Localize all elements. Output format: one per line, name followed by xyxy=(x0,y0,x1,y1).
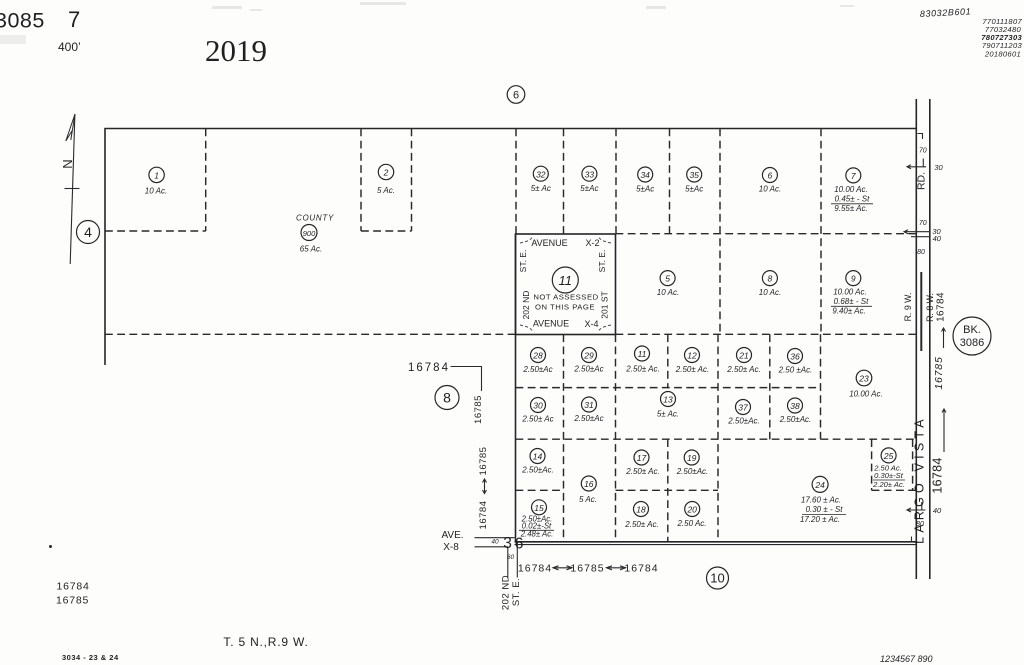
svg-text:65 Ac.: 65 Ac. xyxy=(300,245,322,254)
svg-text:16785: 16785 xyxy=(56,595,89,607)
svg-text:60: 60 xyxy=(507,554,515,561)
svg-text:15: 15 xyxy=(534,503,544,513)
svg-text:16784: 16784 xyxy=(936,292,947,322)
svg-text:10: 10 xyxy=(710,571,724,586)
svg-text:ST. E.: ST. E. xyxy=(511,578,522,606)
svg-text:2.50 Ac.: 2.50 Ac. xyxy=(676,519,706,528)
svg-text:8: 8 xyxy=(443,390,451,406)
svg-text:2.50±Ac.: 2.50±Ac. xyxy=(676,467,709,476)
svg-text:3034 - 23 & 24: 3034 - 23 & 24 xyxy=(62,653,119,662)
svg-text:25: 25 xyxy=(883,451,894,461)
svg-text:16784: 16784 xyxy=(478,501,489,530)
svg-text:400’: 400’ xyxy=(58,40,81,54)
svg-text:AVENUE: AVENUE xyxy=(533,319,569,329)
svg-text:70: 70 xyxy=(919,220,927,227)
svg-text:2.20± Ac.: 2.20± Ac. xyxy=(872,480,905,489)
svg-text:5±Ac: 5±Ac xyxy=(580,184,598,193)
svg-text:2.50± Ac.: 2.50± Ac. xyxy=(625,467,659,476)
svg-text:24: 24 xyxy=(814,480,825,490)
svg-text:10.00 Ac.: 10.00 Ac. xyxy=(849,390,883,399)
svg-text:10 Ac.: 10 Ac. xyxy=(759,288,781,297)
svg-text:11: 11 xyxy=(638,349,647,359)
svg-text:17.60 ± Ac.: 17.60 ± Ac. xyxy=(801,496,841,505)
svg-text:35: 35 xyxy=(689,170,699,180)
svg-text:2.50±Ac.: 2.50±Ac. xyxy=(521,465,554,474)
svg-text:16: 16 xyxy=(584,479,594,489)
svg-text:2.50± Ac: 2.50± Ac xyxy=(521,415,553,424)
svg-text:202 ND: 202 ND xyxy=(501,575,512,610)
svg-text:13: 13 xyxy=(663,395,673,405)
svg-text:2.50± Ac.: 2.50± Ac. xyxy=(624,520,658,529)
svg-text:2.50±Ac.: 2.50±Ac. xyxy=(779,415,812,424)
svg-text:16784: 16784 xyxy=(518,563,552,575)
svg-text:R. 8 W.: R. 8 W. xyxy=(925,293,935,322)
svg-text:RD.: RD. xyxy=(916,172,928,190)
svg-text:0.68± - St: 0.68± - St xyxy=(834,297,869,306)
svg-text:34: 34 xyxy=(640,170,650,180)
svg-text:70: 70 xyxy=(919,148,927,155)
svg-text:7: 7 xyxy=(851,171,856,181)
svg-text:14: 14 xyxy=(533,452,543,462)
svg-text:29: 29 xyxy=(583,351,594,361)
svg-text:2.50± Ac.: 2.50± Ac. xyxy=(675,365,709,374)
svg-text:3: 3 xyxy=(503,535,512,552)
svg-text:6: 6 xyxy=(768,171,773,181)
svg-text:R. 9 W.: R. 9 W. xyxy=(903,293,913,322)
svg-text:1234567 890: 1234567 890 xyxy=(880,654,933,664)
svg-text:30: 30 xyxy=(533,401,543,411)
svg-text:9: 9 xyxy=(851,274,856,284)
svg-text:0.30 ± - St: 0.30 ± - St xyxy=(806,505,844,514)
svg-text:16784: 16784 xyxy=(57,581,90,593)
svg-text:10.00 Ac.: 10.00 Ac. xyxy=(834,185,868,194)
svg-text:3086: 3086 xyxy=(960,337,984,349)
svg-text:900: 900 xyxy=(303,229,316,238)
svg-text:2.50± Ac.: 2.50± Ac. xyxy=(625,364,659,373)
svg-text:16785: 16785 xyxy=(570,563,604,575)
svg-text:N: N xyxy=(60,159,75,168)
svg-text:5± Ac: 5± Ac xyxy=(531,184,551,193)
svg-text:5: 5 xyxy=(665,274,670,284)
svg-text:T. 5 N.,R.9 W.: T. 5 N.,R.9 W. xyxy=(223,635,308,649)
svg-text:40: 40 xyxy=(933,234,942,243)
svg-text:2.50 ±Ac.: 2.50 ±Ac. xyxy=(778,365,813,374)
svg-text:X-2: X-2 xyxy=(585,238,599,248)
svg-text:5±Ac: 5±Ac xyxy=(685,184,703,193)
svg-text:31: 31 xyxy=(584,400,594,410)
svg-text:2.50±Ac: 2.50±Ac xyxy=(573,414,603,423)
svg-text:36: 36 xyxy=(790,352,800,362)
svg-text:21: 21 xyxy=(738,351,749,361)
svg-text:5± Ac.: 5± Ac. xyxy=(657,410,679,419)
svg-text:COUNTY: COUNTY xyxy=(296,214,334,223)
svg-text:5±Ac: 5±Ac xyxy=(636,184,654,193)
svg-text:17: 17 xyxy=(637,453,647,463)
svg-text:37: 37 xyxy=(738,403,748,413)
svg-text:80: 80 xyxy=(916,521,924,528)
svg-text:23: 23 xyxy=(858,374,869,384)
svg-text:19: 19 xyxy=(687,453,697,463)
svg-text:5 Ac.: 5 Ac. xyxy=(377,186,395,195)
svg-text:11: 11 xyxy=(559,273,573,288)
svg-text:0.30±-St: 0.30±-St xyxy=(874,471,904,480)
svg-text:10 Ac.: 10 Ac. xyxy=(657,288,679,297)
svg-text:9.40± Ac.: 9.40± Ac. xyxy=(832,307,865,316)
svg-text:20180601: 20180601 xyxy=(984,50,1021,59)
svg-text:1: 1 xyxy=(154,171,159,181)
svg-text:AVE.: AVE. xyxy=(441,530,463,541)
svg-text:33: 33 xyxy=(585,169,595,179)
svg-text:16784: 16784 xyxy=(408,362,450,374)
svg-text:BK.: BK. xyxy=(963,324,981,336)
svg-text:7: 7 xyxy=(68,7,80,32)
svg-text:X-8: X-8 xyxy=(443,542,459,553)
svg-text:16784: 16784 xyxy=(931,457,945,493)
svg-text:16785: 16785 xyxy=(473,395,484,424)
svg-text:16785: 16785 xyxy=(478,447,489,476)
svg-text:40: 40 xyxy=(491,539,499,546)
svg-text:16785: 16785 xyxy=(933,356,945,389)
svg-text:9.55± Ac.: 9.55± Ac. xyxy=(834,204,867,213)
svg-text:16784: 16784 xyxy=(624,563,658,575)
svg-text:10 Ac.: 10 Ac. xyxy=(145,187,167,196)
svg-text:3085: 3085 xyxy=(0,9,45,33)
svg-text:202 ND: 202 ND xyxy=(521,291,531,320)
svg-text:5 Ac.: 5 Ac. xyxy=(579,495,597,504)
svg-text:NOT ASSESSED: NOT ASSESSED xyxy=(533,293,598,302)
svg-text:80: 80 xyxy=(917,249,925,256)
svg-text:2.48± Ac.: 2.48± Ac. xyxy=(520,530,554,539)
svg-text:0.45± - St: 0.45± - St xyxy=(835,195,870,204)
svg-text:17.20 ± Ac.: 17.20 ± Ac. xyxy=(800,515,840,524)
svg-text:18: 18 xyxy=(636,505,646,515)
svg-text:201 ST: 201 ST xyxy=(600,291,610,318)
svg-text:ST. E.: ST. E. xyxy=(597,250,607,273)
svg-text:2.50±Ac: 2.50±Ac xyxy=(573,364,603,373)
svg-text:10 Ac.: 10 Ac. xyxy=(759,185,781,194)
svg-text:6: 6 xyxy=(513,90,519,102)
svg-text:2.50±Ac: 2.50±Ac xyxy=(522,365,552,374)
svg-text:32: 32 xyxy=(536,169,546,179)
svg-text:12: 12 xyxy=(687,351,697,361)
svg-text:2019: 2019 xyxy=(205,33,267,68)
svg-text:ON THIS PAGE: ON THIS PAGE xyxy=(535,303,595,312)
svg-text:ST. E.: ST. E. xyxy=(518,250,528,273)
svg-text:40: 40 xyxy=(933,506,942,515)
svg-text:2.50± Ac.: 2.50± Ac. xyxy=(726,365,760,374)
svg-text:6: 6 xyxy=(515,536,524,553)
svg-text:20: 20 xyxy=(686,505,697,515)
svg-text:8: 8 xyxy=(768,274,773,284)
svg-text:AVENUE: AVENUE xyxy=(531,238,567,248)
svg-text:2: 2 xyxy=(383,168,389,178)
svg-text:4: 4 xyxy=(84,224,92,240)
svg-text:X-4: X-4 xyxy=(584,319,598,329)
svg-text:10.00 Ac.: 10.00 Ac. xyxy=(833,288,867,297)
svg-text:30: 30 xyxy=(934,163,943,172)
svg-text:2.50±Ac.: 2.50±Ac. xyxy=(727,416,760,425)
svg-text:28: 28 xyxy=(532,351,543,361)
svg-text:38: 38 xyxy=(790,401,800,411)
